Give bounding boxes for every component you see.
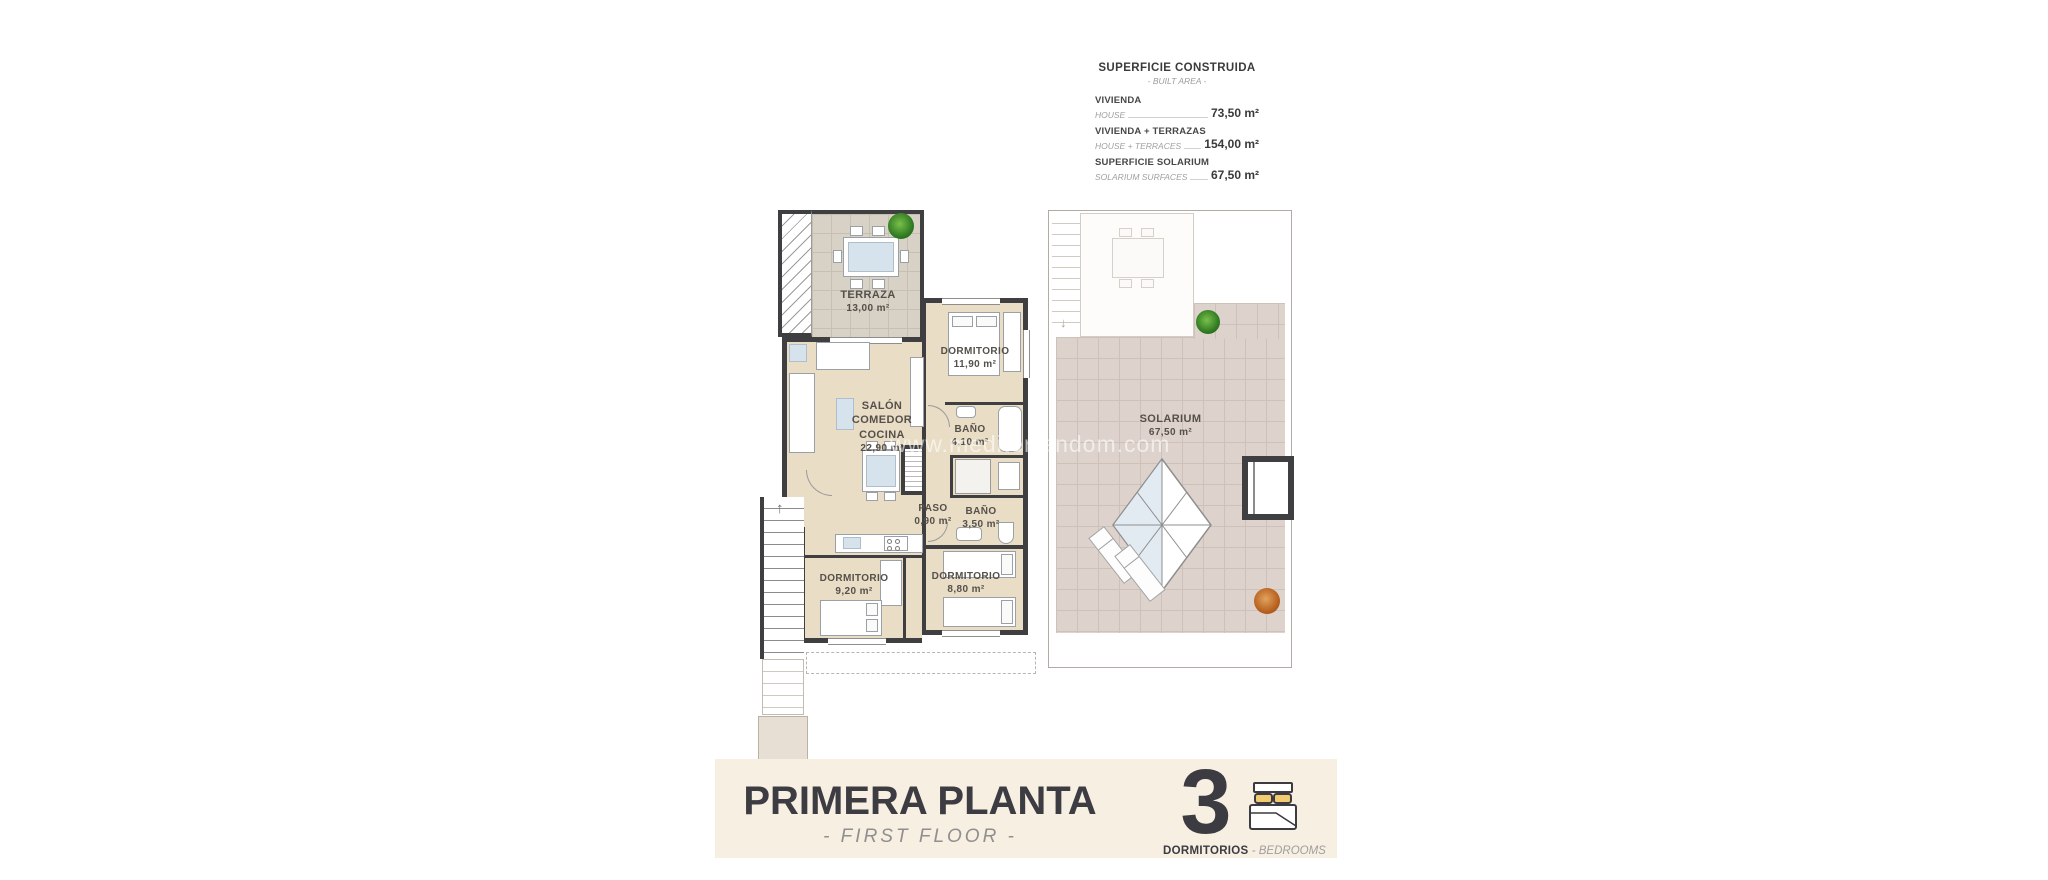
room-name: DORMITORIO xyxy=(925,345,1025,358)
room-label-dormitorio-principal: DORMITORIO 11,90 m² xyxy=(925,345,1025,371)
watermark: www.mediterrandom.com xyxy=(890,431,1170,458)
chair xyxy=(872,226,885,236)
built-area-table: SUPERFICIE CONSTRUIDA - BUILT AREA - VIV… xyxy=(1095,62,1259,188)
shower xyxy=(955,459,991,494)
chair xyxy=(850,226,863,236)
leader-line xyxy=(1184,148,1201,149)
sofa-corner xyxy=(789,373,815,453)
row-line: HOUSE 73,50 m² xyxy=(1095,106,1259,120)
floor-title: PRIMERA PLANTA xyxy=(735,781,1105,821)
pillow xyxy=(866,603,878,616)
chair xyxy=(884,492,896,501)
row-label-es: SUPERFICIE SOLARIUM xyxy=(1095,157,1259,168)
room-name: SOLARIUM xyxy=(1118,412,1223,426)
row-label-en: HOUSE xyxy=(1095,110,1125,120)
stairs-up-arrow-icon: ↑ xyxy=(776,500,784,517)
bedrooms-label-es: DORMITORIOS xyxy=(1163,845,1249,857)
burner-icon xyxy=(887,546,892,551)
pillow xyxy=(866,619,878,632)
built-area-title: SUPERFICIE CONSTRUIDA xyxy=(1095,62,1259,74)
window xyxy=(942,630,1000,637)
floor-banner: PRIMERA PLANTA - FIRST FLOOR - 3 DORMITO… xyxy=(715,759,1337,858)
plant-icon xyxy=(1196,310,1220,334)
room-area: 13,00 m² xyxy=(812,302,924,315)
room-area: 11,90 m² xyxy=(925,358,1025,371)
table-ghost xyxy=(1112,238,1164,278)
chair-ghost xyxy=(1141,279,1154,288)
bedrooms-label-en: - BEDROOMS xyxy=(1252,845,1326,857)
row-value: 67,50 m² xyxy=(1211,168,1259,182)
external-stairs xyxy=(760,497,804,659)
row-value: 154,00 m² xyxy=(1204,137,1259,151)
dining-table-glass xyxy=(848,242,894,272)
room-area: 8,80 m² xyxy=(920,583,1012,596)
bedrooms-badge: 3 DORMITORIOS - BEDROOMS xyxy=(1163,767,1323,857)
room-name: TERRAZA xyxy=(812,288,924,302)
plant-icon xyxy=(888,213,914,239)
wall xyxy=(903,558,906,638)
kitchen-sink xyxy=(843,537,861,549)
wall xyxy=(950,495,1028,498)
bed-icon xyxy=(1240,782,1306,837)
room-name: BAÑO xyxy=(948,505,1014,518)
plant-icon xyxy=(1254,588,1280,614)
room-label-terraza: TERRAZA 13,00 m² xyxy=(812,288,924,315)
row-label-es: VIVIENDA + TERRAZAS xyxy=(1095,126,1259,137)
pillow xyxy=(976,316,997,327)
chair-ghost xyxy=(1141,228,1154,237)
floor-subtitle: - FIRST FLOOR - xyxy=(735,826,1105,848)
bedrooms-row: 3 xyxy=(1163,767,1323,839)
window xyxy=(942,298,1000,305)
sink xyxy=(956,406,976,418)
chair xyxy=(900,250,909,263)
burner-icon xyxy=(895,546,900,551)
chair-ghost xyxy=(1119,279,1132,288)
room-name: COMEDOR xyxy=(832,413,932,427)
row-value: 73,50 m² xyxy=(1211,106,1259,120)
wall xyxy=(945,402,1028,405)
window xyxy=(828,638,886,645)
table-row: VIVIENDA + TERRAZAS HOUSE + TERRACES 154… xyxy=(1095,126,1259,151)
leader-line xyxy=(1128,117,1208,118)
table-row: SUPERFICIE SOLARIUM SOLARIUM SURFACES 67… xyxy=(1095,157,1259,182)
stairwell xyxy=(778,210,812,337)
burner-icon xyxy=(887,539,892,544)
stairs-down-arrow-icon: ↓ xyxy=(1060,315,1067,330)
row-label-es: VIVIENDA xyxy=(1095,95,1259,106)
pillow xyxy=(952,316,973,327)
room-area: 3,50 m² xyxy=(948,518,1014,531)
chair xyxy=(866,492,878,501)
banner-titles: PRIMERA PLANTA - FIRST FLOOR - xyxy=(735,781,1105,848)
stair-bulkhead xyxy=(1242,456,1294,520)
window-sill xyxy=(789,344,807,362)
external-stairs-lower xyxy=(762,659,804,715)
room-area: 9,20 m² xyxy=(808,585,900,598)
wall xyxy=(950,455,953,498)
burner-icon xyxy=(895,539,900,544)
leader-line xyxy=(1190,179,1208,180)
room-name: DORMITORIO xyxy=(920,570,1012,583)
bulkhead-line xyxy=(1253,462,1255,514)
bedrooms-label: DORMITORIOS - BEDROOMS xyxy=(1163,845,1323,857)
bedrooms-count: 3 xyxy=(1180,767,1231,839)
row-label-en: SOLARIUM SURFACES xyxy=(1095,172,1187,182)
dining-table-glass xyxy=(866,455,896,487)
row-label-en: HOUSE + TERRACES xyxy=(1095,141,1181,151)
washbasin-unit xyxy=(998,462,1020,490)
room-label-dormitorio3: DORMITORIO 8,80 m² xyxy=(920,570,1012,596)
built-area-subtitle: - BUILT AREA - xyxy=(1095,76,1259,86)
pillow xyxy=(1001,600,1013,624)
row-line: HOUSE + TERRACES 154,00 m² xyxy=(1095,137,1259,151)
room-label-dormitorio2: DORMITORIO 9,20 m² xyxy=(808,572,900,598)
row-line: SOLARIUM SURFACES 67,50 m² xyxy=(1095,168,1259,182)
table-row: VIVIENDA HOUSE 73,50 m² xyxy=(1095,95,1259,120)
chair xyxy=(833,250,842,263)
room-name: SALÓN xyxy=(832,399,932,413)
floor-plan-page: SUPERFICIE CONSTRUIDA - BUILT AREA - VIV… xyxy=(0,0,2048,880)
wall xyxy=(925,545,1028,549)
room-label-bano2: BAÑO 3,50 m² xyxy=(948,505,1014,531)
chair-ghost xyxy=(1119,228,1132,237)
sofa xyxy=(816,342,870,370)
porch-outline xyxy=(806,652,1036,674)
room-name: DORMITORIO xyxy=(808,572,900,585)
